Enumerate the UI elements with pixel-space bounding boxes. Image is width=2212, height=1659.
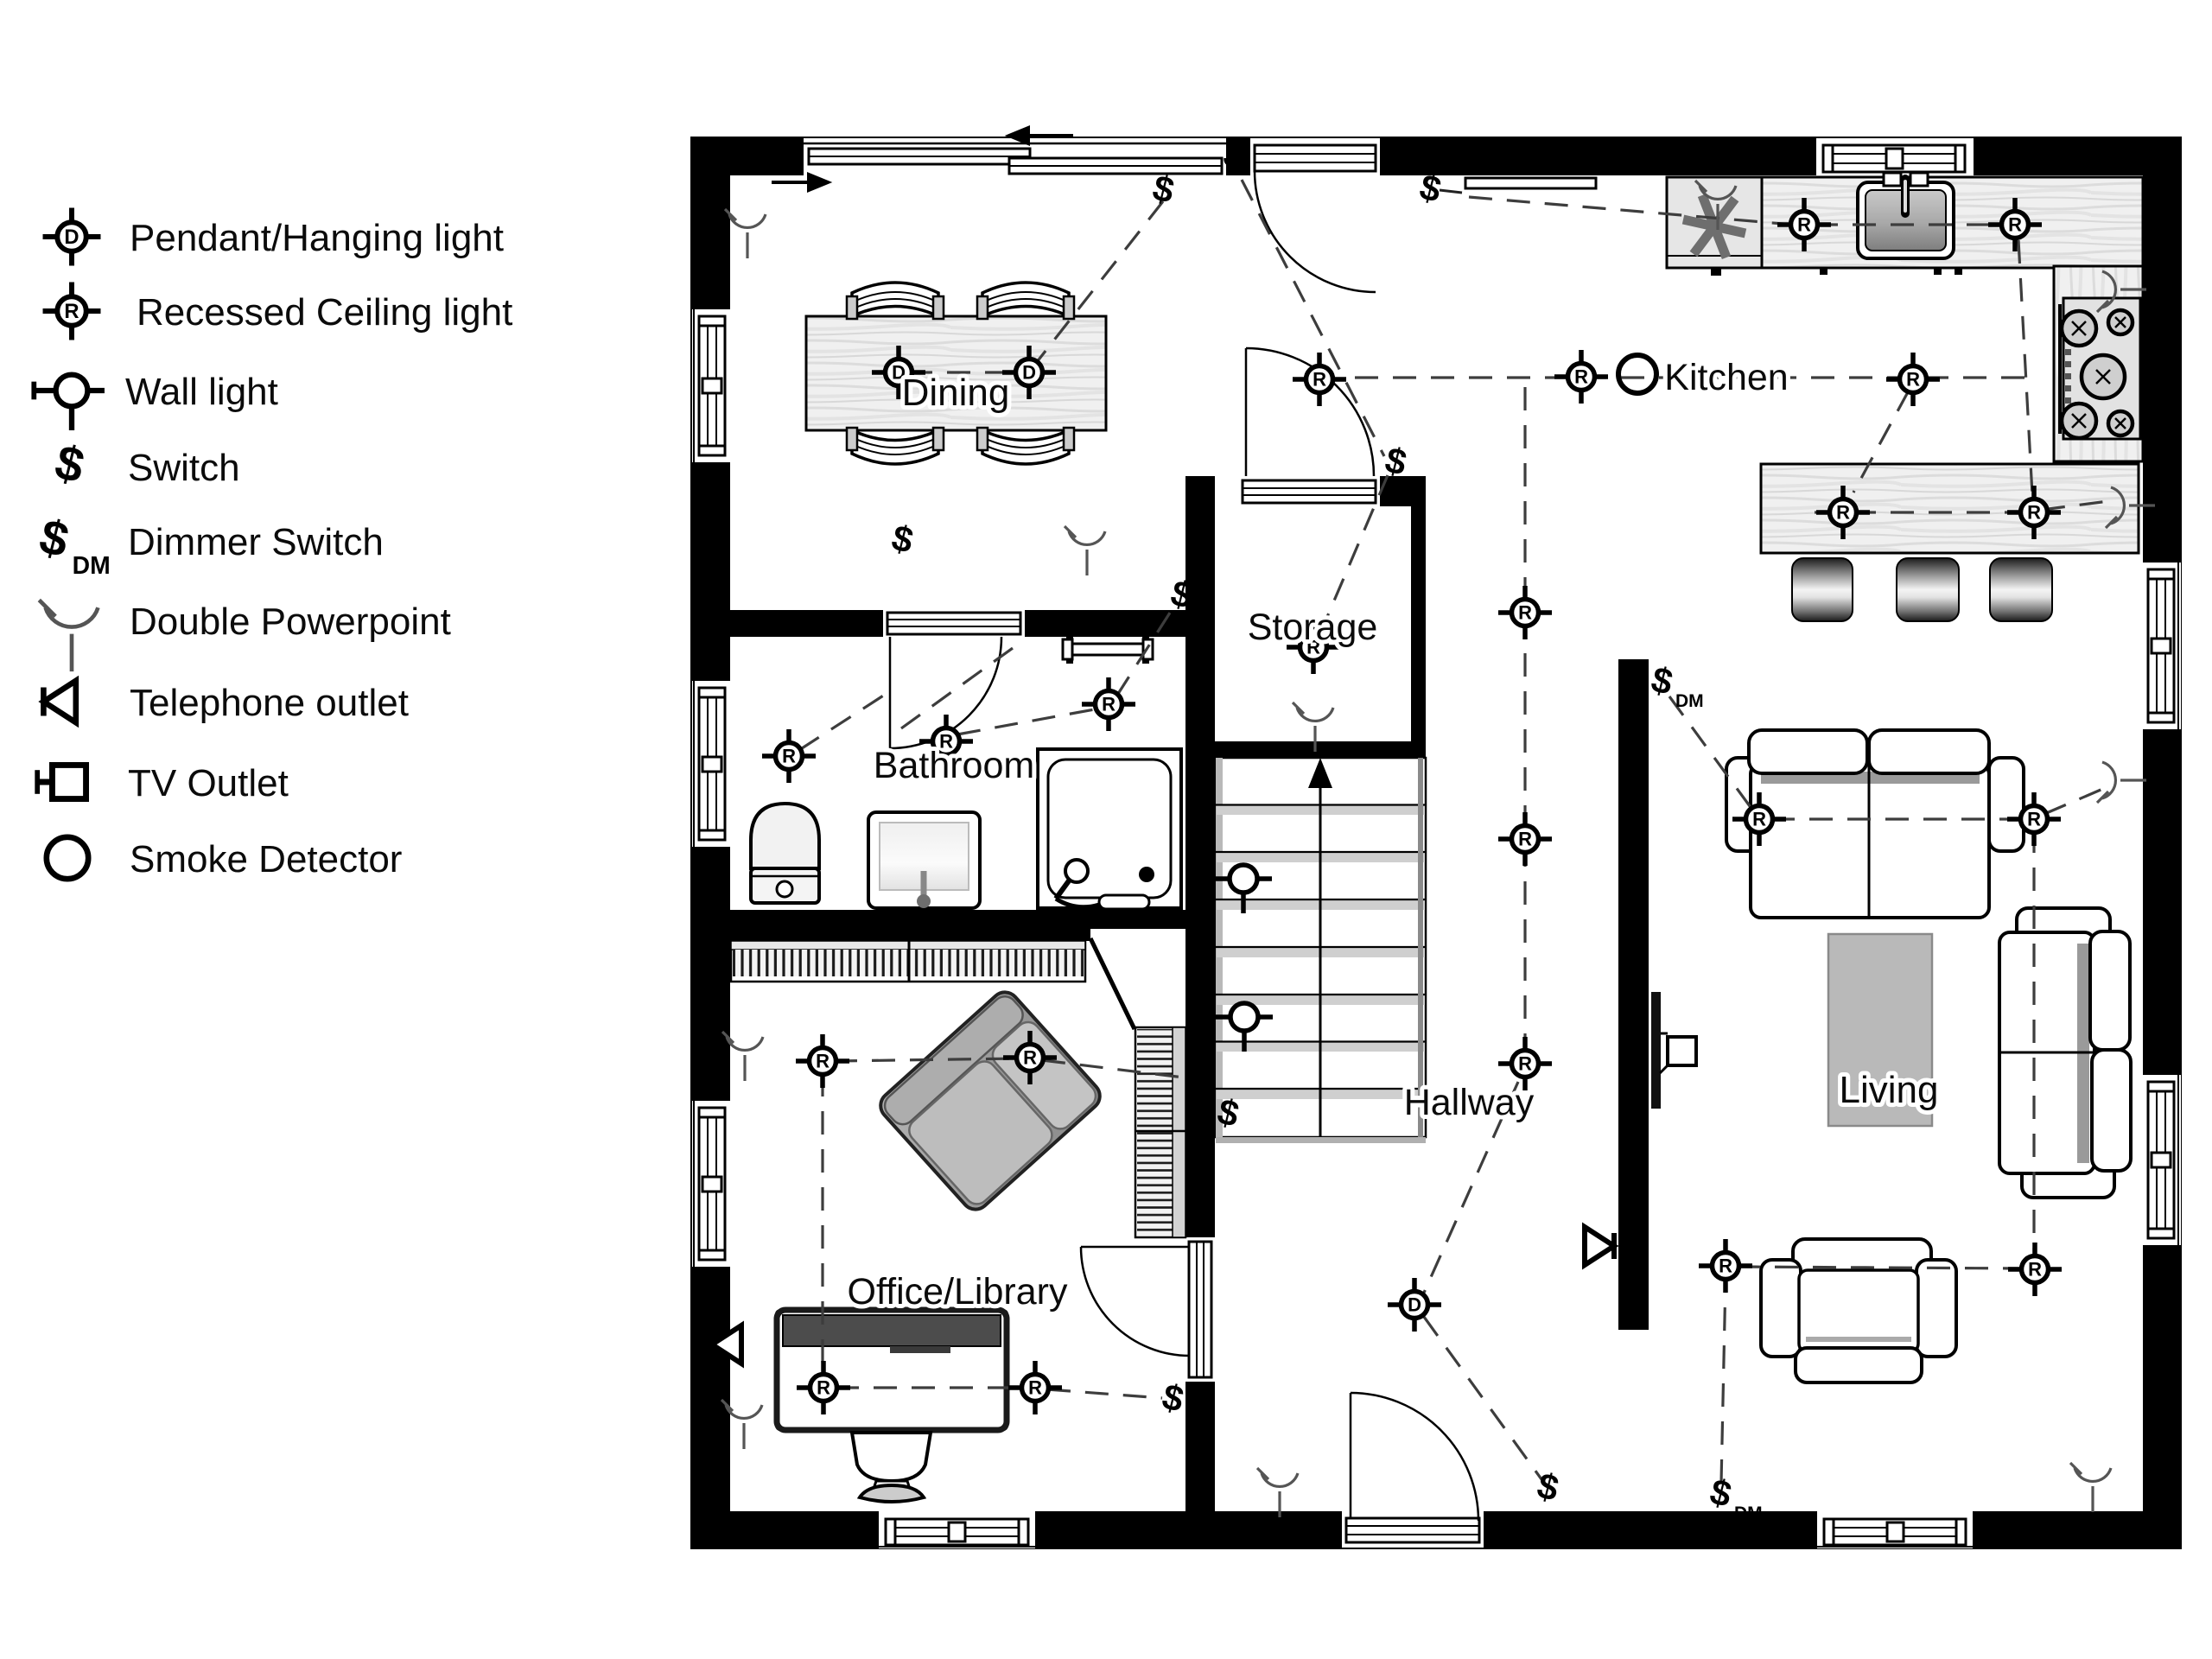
svg-text:Smoke Detector: Smoke Detector — [130, 838, 402, 880]
svg-text:Kitchen: Kitchen — [1664, 357, 1788, 398]
svg-text:TV Outlet: TV Outlet — [128, 762, 289, 804]
svg-text:Pendant/Hanging light: Pendant/Hanging light — [130, 217, 504, 259]
svg-text:Switch: Switch — [128, 447, 240, 489]
svg-text:Dimmer Switch: Dimmer Switch — [128, 521, 384, 563]
svg-text:Storage: Storage — [1248, 607, 1378, 648]
svg-text:Hallway: Hallway — [1404, 1082, 1535, 1123]
svg-text:Wall light: Wall light — [125, 371, 278, 413]
svg-text:Bathroom: Bathroom — [874, 745, 1034, 786]
svg-text:Double Powerpoint: Double Powerpoint — [130, 601, 451, 643]
svg-text:Living: Living — [1840, 1069, 1939, 1111]
svg-text:Telephone outlet: Telephone outlet — [130, 682, 409, 724]
svg-text:Recessed Ceiling light: Recessed Ceiling light — [137, 291, 512, 334]
svg-text:Office/Library: Office/Library — [848, 1271, 1068, 1313]
svg-text:Dining: Dining — [902, 372, 1010, 414]
